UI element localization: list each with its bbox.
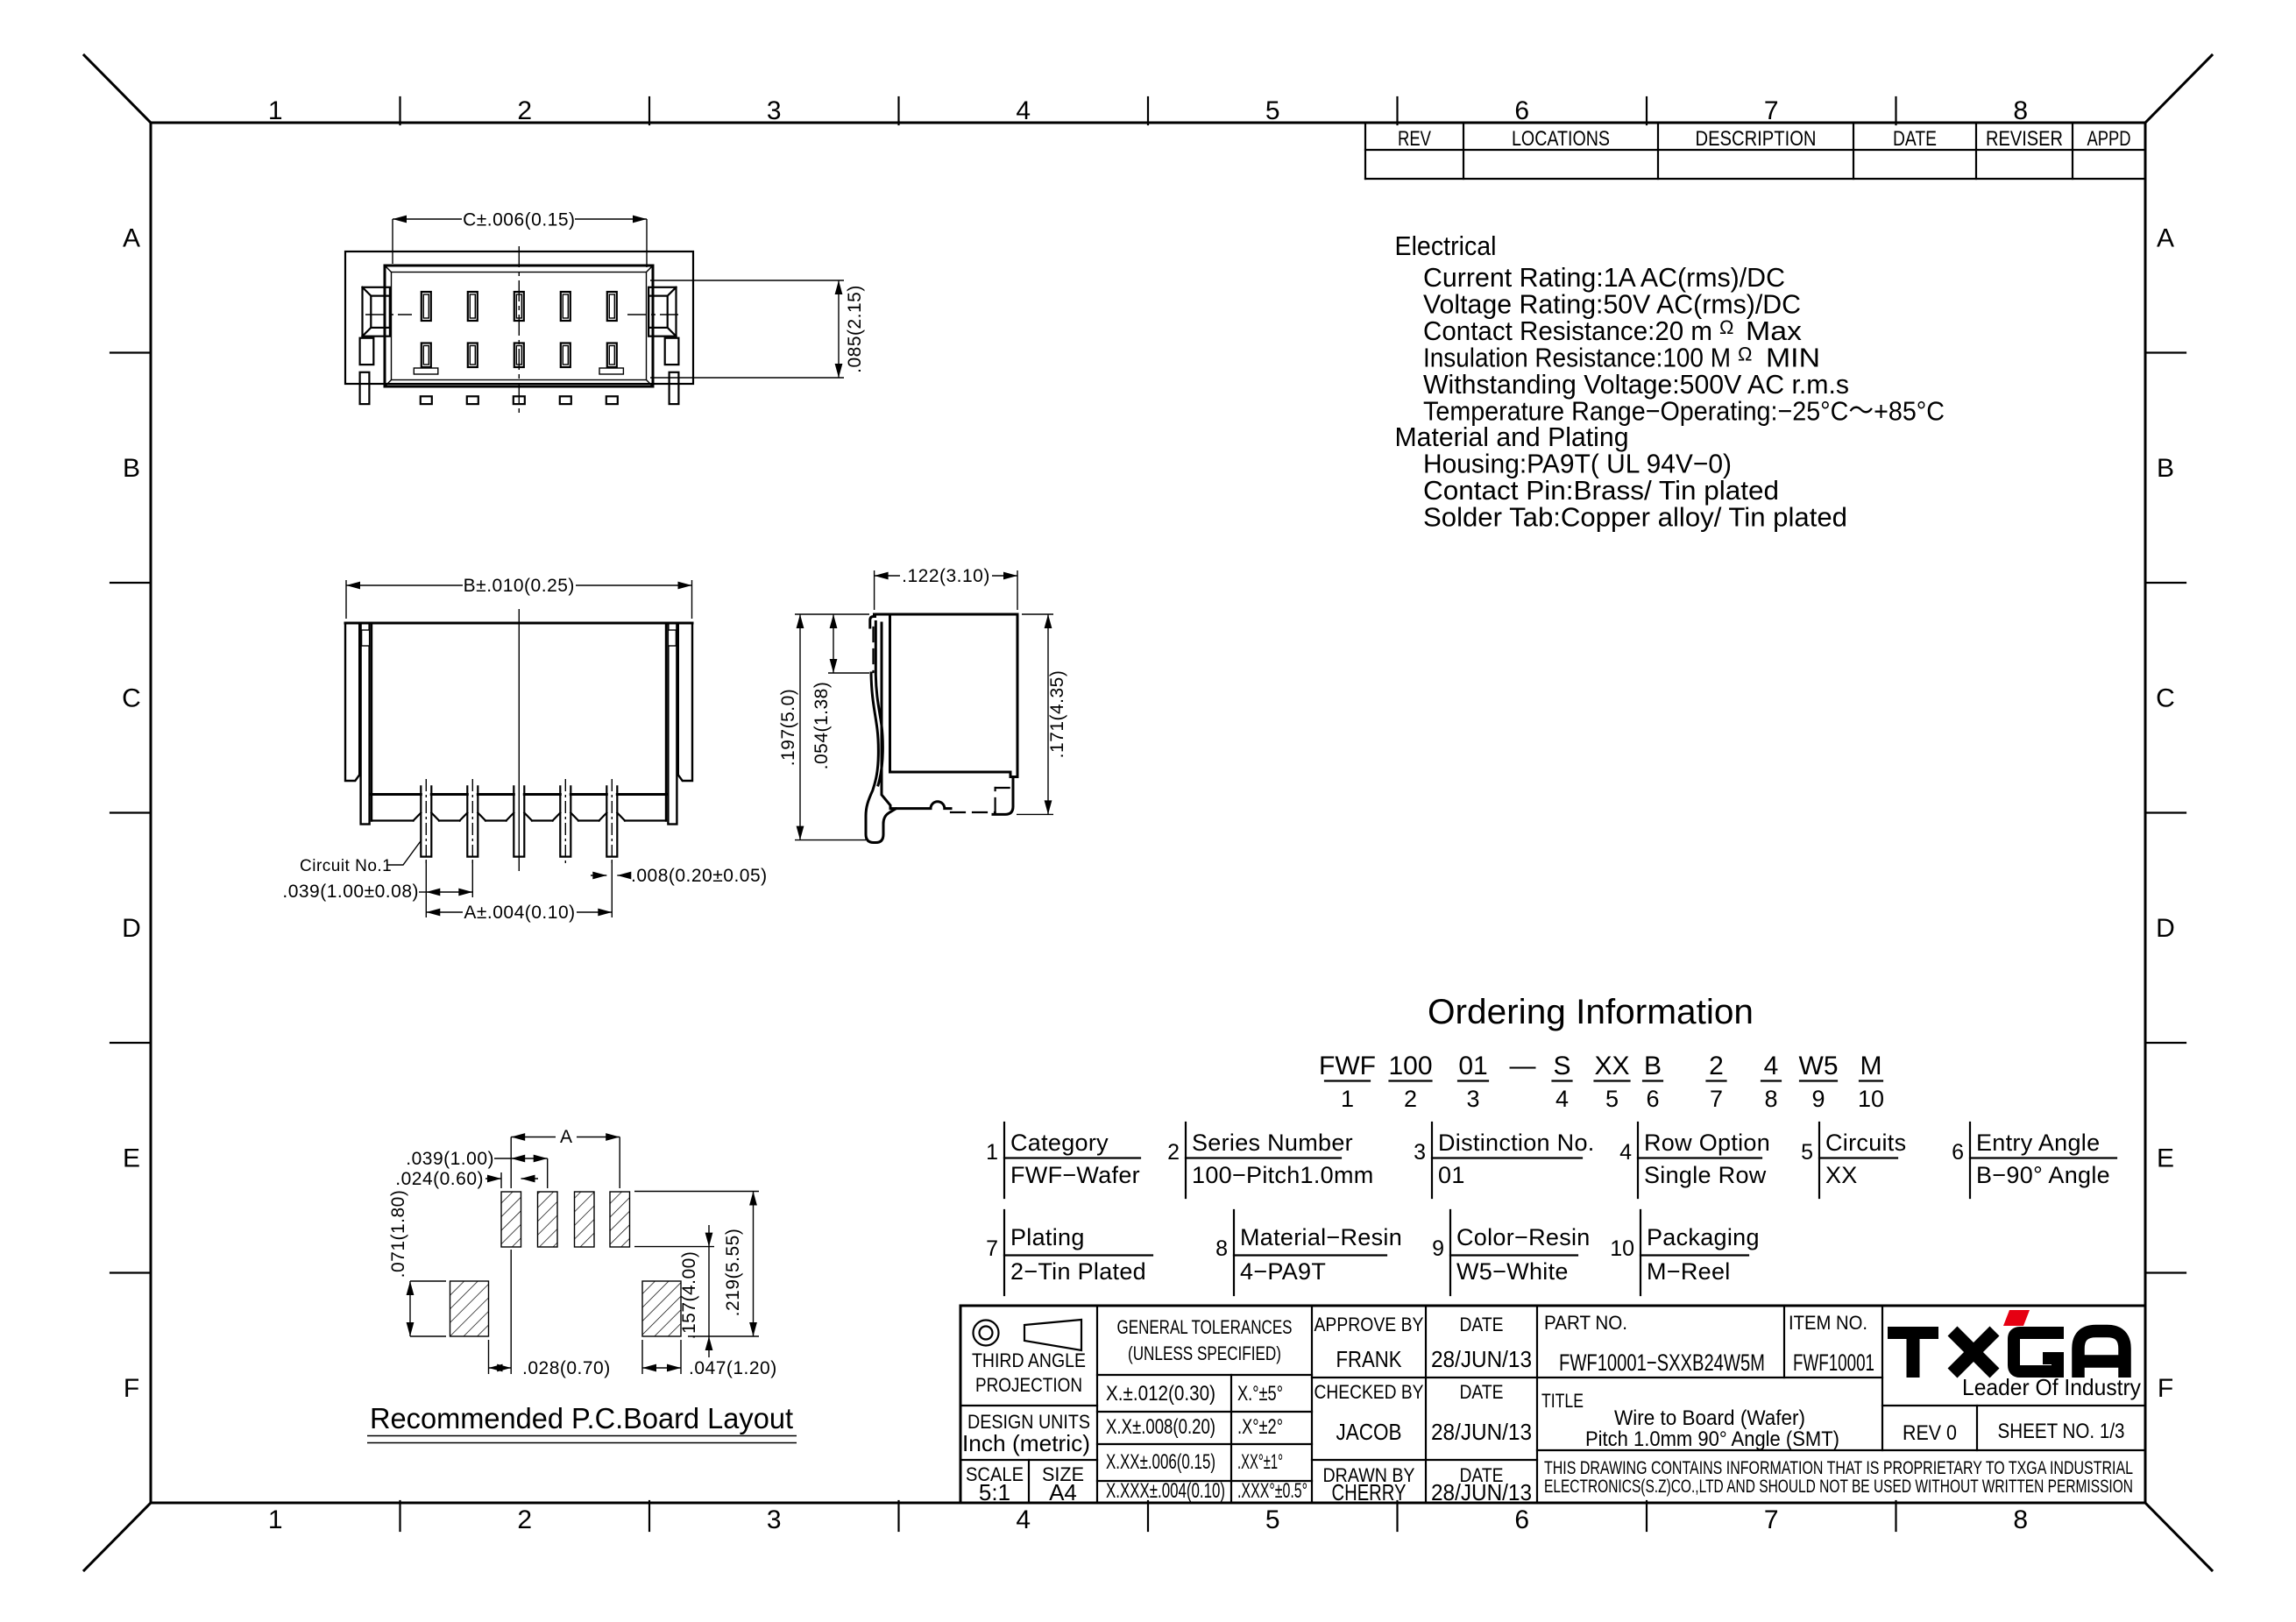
svg-text:Category: Category xyxy=(1010,1130,1109,1156)
svg-text:.219(5.55): .219(5.55) xyxy=(723,1229,743,1317)
svg-text:FWF−Wafer: FWF−Wafer xyxy=(1010,1162,1140,1188)
svg-text:2: 2 xyxy=(517,96,532,125)
svg-text:10: 10 xyxy=(1858,1086,1884,1112)
svg-text:1: 1 xyxy=(1341,1086,1354,1112)
svg-text:.XXX°±0.5°: .XXX°±0.5° xyxy=(1237,1479,1307,1503)
svg-text:Pitch 1.0mm 90° Angle (SMT: Pitch 1.0mm 90° Angle (SMT) xyxy=(1585,1427,1839,1451)
svg-text:—: — xyxy=(1510,1052,1536,1080)
svg-text:APPROVE BY: APPROVE BY xyxy=(1315,1314,1424,1335)
svg-text:CHERRY: CHERRY xyxy=(1332,1479,1407,1505)
svg-text:.197(5.0): .197(5.0) xyxy=(778,689,798,767)
svg-text:Wire to Board (Wafer): Wire to Board (Wafer) xyxy=(1614,1406,1805,1430)
svg-text:4: 4 xyxy=(1619,1140,1632,1165)
svg-text:SHEET NO. 1/3: SHEET NO. 1/3 xyxy=(1998,1420,2125,1443)
svg-text:6: 6 xyxy=(1646,1086,1659,1112)
svg-text:C: C xyxy=(122,684,141,712)
svg-text:ELECTRONICS(S.Z)CO.,LTD AND: ELECTRONICS(S.Z)CO.,LTD AND SHOULD NOT B… xyxy=(1544,1477,2133,1497)
svg-text:Insulation Resistance:100 M: Insulation Resistance:100 M xyxy=(1423,343,1731,373)
svg-text:4: 4 xyxy=(1016,1505,1031,1534)
svg-text:X.XX±.006(0.15): X.XX±.006(0.15) xyxy=(1106,1450,1215,1474)
svg-text:Solder Tab:Copper alloy/ Ti: Solder Tab:Copper alloy/ Tin plated xyxy=(1423,502,1847,533)
svg-text:Ordering Information: Ordering Information xyxy=(1428,993,1754,1031)
svg-text:2: 2 xyxy=(1404,1086,1417,1112)
svg-text:.047(1.20): .047(1.20) xyxy=(689,1358,777,1378)
svg-text:F: F xyxy=(2158,1374,2173,1403)
svg-text:ITEM NO.: ITEM NO. xyxy=(1789,1312,1867,1334)
svg-text:Ω: Ω xyxy=(1719,316,1733,338)
svg-text:2−Tin Plated: 2−Tin Plated xyxy=(1010,1258,1146,1285)
svg-text:Electrical: Electrical xyxy=(1395,230,1497,261)
svg-text:CHECKED BY: CHECKED BY xyxy=(1315,1381,1424,1403)
svg-text:A: A xyxy=(2157,223,2174,252)
svg-text:A4: A4 xyxy=(1049,1479,1077,1505)
svg-text:XX: XX xyxy=(1594,1052,1629,1080)
svg-text:28/JUN/13: 28/JUN/13 xyxy=(1431,1479,1532,1505)
svg-text:A: A xyxy=(123,223,140,252)
svg-text:Distinction No.: Distinction No. xyxy=(1438,1130,1595,1156)
svg-text:PROJECTION: PROJECTION xyxy=(975,1374,1082,1396)
svg-text:Circuit No.1: Circuit No.1 xyxy=(300,857,392,875)
svg-text:7: 7 xyxy=(1764,96,1779,125)
svg-text:Plating: Plating xyxy=(1010,1224,1085,1250)
svg-text:100: 100 xyxy=(1388,1052,1432,1080)
svg-text:10: 10 xyxy=(1610,1236,1634,1261)
svg-text:8: 8 xyxy=(1764,1086,1777,1112)
svg-text:X.°±5°: X.°±5° xyxy=(1237,1382,1283,1406)
svg-text:.024(0.60): .024(0.60) xyxy=(395,1169,484,1189)
svg-text:M−Reel: M−Reel xyxy=(1647,1258,1731,1285)
svg-text:B: B xyxy=(2157,454,2174,483)
svg-text:2: 2 xyxy=(1167,1140,1180,1165)
svg-text:5: 5 xyxy=(1265,1505,1280,1534)
svg-text:5:1: 5:1 xyxy=(979,1479,1010,1505)
svg-text:W5: W5 xyxy=(1799,1052,1839,1080)
svg-text:7: 7 xyxy=(1710,1086,1723,1112)
svg-text:.008(0.20±0.05): .008(0.20±0.05) xyxy=(631,866,768,886)
svg-text:4: 4 xyxy=(1016,96,1031,125)
svg-text:1: 1 xyxy=(268,96,283,125)
svg-text:A: A xyxy=(560,1127,572,1147)
svg-text:Inch (metric): Inch (metric) xyxy=(962,1430,1090,1456)
svg-text:E: E xyxy=(2157,1144,2174,1172)
svg-text:8: 8 xyxy=(1215,1236,1228,1261)
svg-text:X.±.012(0.30): X.±.012(0.30) xyxy=(1106,1382,1215,1406)
svg-text:DESCRIPTION: DESCRIPTION xyxy=(1696,127,1817,151)
svg-text:Color−Resin: Color−Resin xyxy=(1456,1224,1591,1250)
svg-text:DATE: DATE xyxy=(1460,1381,1504,1403)
svg-text:Material−Resin: Material−Resin xyxy=(1240,1224,1402,1250)
svg-text:8: 8 xyxy=(2013,1505,2028,1534)
svg-text:.XX°±1°: .XX°±1° xyxy=(1237,1450,1283,1474)
svg-text:Ω: Ω xyxy=(1738,344,1752,365)
svg-text:FRANK: FRANK xyxy=(1336,1346,1403,1372)
svg-text:.028(0.70): .028(0.70) xyxy=(522,1358,611,1378)
svg-text:.085(2.15): .085(2.15) xyxy=(845,285,865,373)
svg-text:.157(4.00): .157(4.00) xyxy=(679,1251,699,1340)
svg-text:4: 4 xyxy=(1555,1086,1569,1112)
svg-text:7: 7 xyxy=(986,1236,998,1261)
svg-text:A±.004(0.10): A±.004(0.10) xyxy=(464,903,575,923)
svg-text:GENERAL TOLERANCES: GENERAL TOLERANCES xyxy=(1117,1316,1293,1338)
svg-text:8: 8 xyxy=(2013,96,2028,125)
svg-text:B−90° Angle: B−90° Angle xyxy=(1976,1162,2110,1188)
svg-text:Circuits: Circuits xyxy=(1825,1130,1906,1156)
svg-text:01: 01 xyxy=(1458,1052,1487,1080)
svg-text:B: B xyxy=(123,454,140,483)
svg-text:28/JUN/13: 28/JUN/13 xyxy=(1431,1346,1532,1372)
svg-text:Leader Of Industry: Leader Of Industry xyxy=(1962,1374,2141,1400)
svg-text:.071(1.80): .071(1.80) xyxy=(388,1190,408,1278)
svg-text:6: 6 xyxy=(1514,96,1529,125)
svg-text:5: 5 xyxy=(1801,1140,1813,1165)
svg-text:DATE: DATE xyxy=(1893,127,1937,151)
svg-text:Recommended P.C.Board Layout: Recommended P.C.Board Layout xyxy=(370,1402,793,1434)
svg-text:.054(1.38): .054(1.38) xyxy=(811,682,832,770)
svg-text:C: C xyxy=(2156,684,2175,712)
svg-text:B±.010(0.25): B±.010(0.25) xyxy=(464,576,575,596)
svg-text:MIN: MIN xyxy=(1766,343,1820,373)
svg-text:2: 2 xyxy=(517,1505,532,1534)
svg-text:REVISER: REVISER xyxy=(1986,127,2063,151)
svg-text:W5−White: W5−White xyxy=(1456,1258,1569,1285)
svg-text:APPD: APPD xyxy=(2087,127,2131,151)
svg-text:JACOB: JACOB xyxy=(1336,1419,1402,1445)
svg-text:REV: REV xyxy=(1398,127,1431,151)
svg-text:XX: XX xyxy=(1825,1162,1858,1188)
svg-text:S: S xyxy=(1553,1052,1570,1080)
svg-text:3: 3 xyxy=(1466,1086,1479,1112)
svg-text:M: M xyxy=(1860,1052,1882,1080)
svg-text:01: 01 xyxy=(1438,1162,1465,1188)
svg-text:5: 5 xyxy=(1605,1086,1619,1112)
svg-text:.X°±2°: .X°±2° xyxy=(1237,1415,1283,1439)
svg-text:.122(3.10): .122(3.10) xyxy=(902,566,990,586)
svg-text:Series Number: Series Number xyxy=(1192,1130,1353,1156)
svg-text:Packaging: Packaging xyxy=(1647,1224,1760,1250)
svg-text:FWF10001: FWF10001 xyxy=(1793,1349,1874,1376)
svg-text:3: 3 xyxy=(767,1505,782,1534)
svg-text:4: 4 xyxy=(1764,1052,1779,1080)
svg-text:6: 6 xyxy=(1514,1505,1529,1534)
svg-text:7: 7 xyxy=(1764,1505,1779,1534)
svg-text:4−PA9T: 4−PA9T xyxy=(1240,1258,1326,1285)
svg-text:3: 3 xyxy=(767,96,782,125)
svg-text:100−Pitch1.0mm: 100−Pitch1.0mm xyxy=(1192,1162,1374,1188)
svg-text:DATE: DATE xyxy=(1460,1314,1504,1335)
svg-text:.039(1.00±0.08): .039(1.00±0.08) xyxy=(282,882,419,902)
svg-text:FWF10001−SXXB24W5M: FWF10001−SXXB24W5M xyxy=(1559,1349,1765,1376)
svg-text:PART NO.: PART NO. xyxy=(1544,1312,1627,1334)
svg-text:Row Option: Row Option xyxy=(1644,1130,1770,1156)
svg-text:28/JUN/13: 28/JUN/13 xyxy=(1431,1419,1532,1445)
svg-text:1: 1 xyxy=(268,1505,283,1534)
svg-text:REV 0: REV 0 xyxy=(1903,1421,1957,1445)
svg-text:2: 2 xyxy=(1709,1052,1724,1080)
svg-text:X.XXX±.004(0.10): X.XXX±.004(0.10) xyxy=(1106,1479,1225,1503)
svg-text:Entry Angle: Entry Angle xyxy=(1976,1130,2100,1156)
svg-text:.171(4.35): .171(4.35) xyxy=(1047,670,1067,759)
svg-text:1: 1 xyxy=(986,1140,998,1165)
svg-text:D: D xyxy=(122,914,141,943)
svg-text:9: 9 xyxy=(1811,1086,1825,1112)
svg-text:9: 9 xyxy=(1432,1236,1444,1261)
svg-text:C±.006(0.15): C±.006(0.15) xyxy=(463,210,575,230)
svg-text:Single Row: Single Row xyxy=(1644,1162,1767,1188)
svg-text:FWF: FWF xyxy=(1319,1052,1376,1080)
svg-text:F: F xyxy=(124,1374,139,1403)
svg-text:3: 3 xyxy=(1414,1140,1426,1165)
svg-text:6: 6 xyxy=(1952,1140,1964,1165)
svg-text:(UNLESS SPECIFIED): (UNLESS SPECIFIED) xyxy=(1128,1342,1281,1364)
svg-text:THIRD ANGLE: THIRD ANGLE xyxy=(972,1349,1086,1371)
svg-text:.039(1.00): .039(1.00) xyxy=(406,1149,494,1169)
svg-text:LOCATIONS: LOCATIONS xyxy=(1512,127,1610,151)
svg-text:B: B xyxy=(1644,1052,1662,1080)
svg-text:X.X±.008(0.20): X.X±.008(0.20) xyxy=(1106,1415,1215,1439)
svg-text:TITLE: TITLE xyxy=(1541,1390,1584,1412)
svg-text:D: D xyxy=(2156,914,2175,943)
svg-text:E: E xyxy=(123,1144,140,1172)
svg-text:THIS DRAWING CONTAINS INFOR: THIS DRAWING CONTAINS INFORMATION THAT I… xyxy=(1544,1458,2133,1478)
svg-text:5: 5 xyxy=(1265,96,1280,125)
